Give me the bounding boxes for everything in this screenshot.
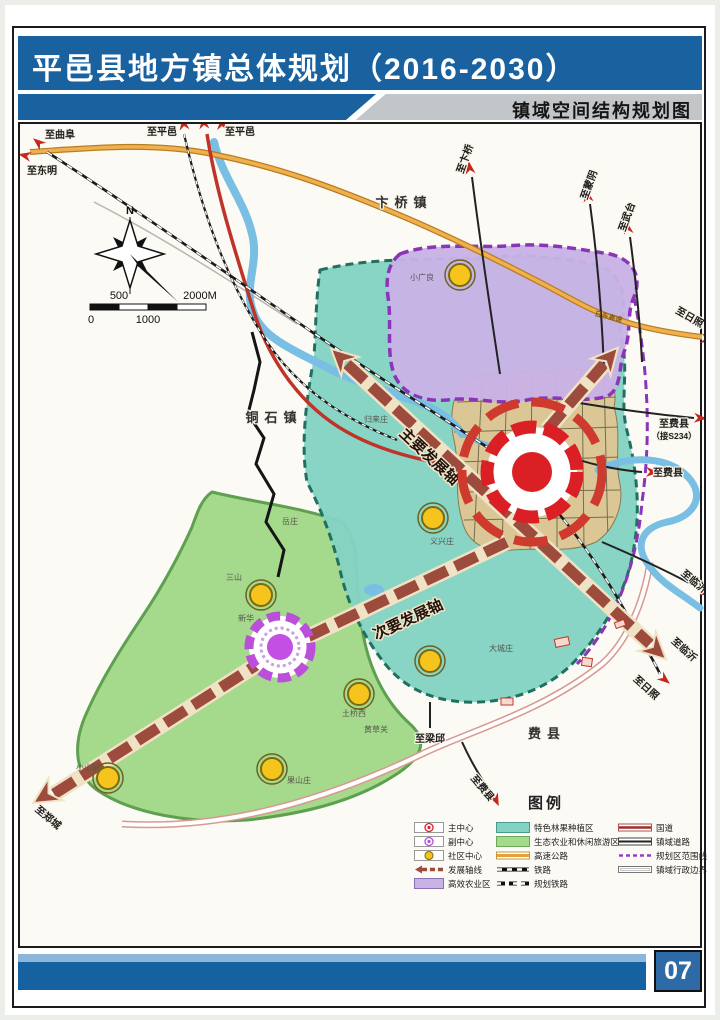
page-number: 07 <box>654 950 702 992</box>
scale-label: 2000M <box>183 290 217 302</box>
legend-item-community-center: 社区中心 <box>414 850 491 861</box>
legend-label: 铁路 <box>534 864 551 876</box>
road-label: 至蒙阴 <box>577 168 599 201</box>
legend-label: 副中心 <box>448 836 474 848</box>
village-label: 土桥西 <box>342 708 366 718</box>
sub-center-icon <box>414 836 444 847</box>
road-label: 至日照 <box>674 305 704 330</box>
village-label: 大城庄 <box>489 643 513 653</box>
road-label: 至平邑 <box>225 126 255 138</box>
subtitle-plate: 镇域空间结构规划图 <box>356 94 702 120</box>
page-title: 平邑县地方镇总体规划（2016-2030） <box>32 44 577 88</box>
national-road-icon <box>618 822 652 833</box>
planned-railway-icon <box>496 878 530 889</box>
legend-label: 规划区范围线 <box>656 850 707 862</box>
village-label: 归来庄 <box>364 414 388 424</box>
community-center-icon <box>414 850 444 861</box>
legend-item-forest-fruit: 特色林果种植区 <box>496 822 619 833</box>
railway-icon <box>496 864 530 875</box>
road-label: 至费县 <box>659 417 689 430</box>
road-label: 至武台 <box>615 200 637 233</box>
road-label: 至平邑 <box>147 126 177 138</box>
legend-label: 生态农业和休闲旅游区 <box>534 836 619 848</box>
map-subtitle: 镇域空间结构规划图 <box>512 97 692 123</box>
legend: 图例 主中心 副中心 社区中心 发展轴线 高效农业区 <box>388 792 704 916</box>
legend-column-2: 特色林果种植区 生态农业和休闲旅游区 高速公路 铁路 规划铁路 <box>496 822 619 892</box>
road-label: 至梁邱 <box>415 732 445 745</box>
village-label: 小山前 <box>76 762 100 772</box>
scale-label: 1000 <box>136 314 160 326</box>
legend-label: 高效农业区 <box>448 878 491 890</box>
town-label: 费县 <box>528 726 566 741</box>
compass-north-label: N <box>126 205 134 217</box>
eco-tourism-swatch <box>496 836 530 847</box>
legend-item-town-road: 镇域道路 <box>618 836 707 847</box>
road-label: （接S234） <box>651 431 696 441</box>
legend-column-1: 主中心 副中心 社区中心 发展轴线 高效农业区 <box>414 822 491 892</box>
admin-boundary-icon <box>618 864 652 875</box>
expressway-icon <box>496 850 530 861</box>
road-label: 至东明 <box>27 164 57 177</box>
legend-label: 社区中心 <box>448 850 482 862</box>
sub-center <box>249 616 311 678</box>
main-center-icon <box>414 822 444 833</box>
legend-item-eco-tourism: 生态农业和休闲旅游区 <box>496 836 619 847</box>
legend-column-3: 国道 镇域道路 规划区范围线 镇域行政边界 <box>618 822 707 878</box>
legend-label: 镇域道路 <box>656 836 690 848</box>
road-label: 至临沂 <box>669 635 700 665</box>
village-label: 义兴庄 <box>430 536 454 546</box>
legend-label: 国道 <box>656 822 673 834</box>
village-label: 果山庄 <box>287 775 311 785</box>
road-label: 至费县 <box>653 466 683 479</box>
legend-label: 主中心 <box>448 822 474 834</box>
legend-label: 特色林果种植区 <box>534 822 594 834</box>
village-label: 三山 <box>226 572 242 582</box>
legend-item-admin-boundary: 镇域行政边界 <box>618 864 707 875</box>
legend-label: 发展轴线 <box>448 864 482 876</box>
town-label: 铜石镇 <box>244 410 302 425</box>
legend-item-main-center: 主中心 <box>414 822 491 833</box>
town-road-icon <box>618 836 652 847</box>
legend-title: 图例 <box>388 792 704 813</box>
legend-label: 镇域行政边界 <box>656 864 707 876</box>
scanned-plan-page: 平邑县地方镇总体规划（2016-2030） 镇域空间结构规划图 <box>0 0 720 1020</box>
scale-label: 500 <box>110 290 128 302</box>
legend-item-planned-railway: 规划铁路 <box>496 878 619 889</box>
road-label: 至郑城 <box>33 803 64 832</box>
legend-item-planning-boundary: 规划区范围线 <box>618 850 707 861</box>
scale-bar: 500 2000M 0 1000 <box>88 290 217 326</box>
efficient-agriculture-swatch <box>414 878 444 889</box>
village-label: 新华 <box>238 613 254 623</box>
legend-item-development-axis: 发展轴线 <box>414 864 491 875</box>
village-label: 岳庄 <box>282 516 298 526</box>
legend-item-national-road: 国道 <box>618 822 707 833</box>
road-label: 至曲阜 <box>45 128 75 141</box>
footer-bar-light <box>18 954 646 962</box>
road-label: 至日照 <box>631 673 661 702</box>
legend-label: 高速公路 <box>534 850 568 862</box>
legend-item-expressway: 高速公路 <box>496 850 619 861</box>
planning-boundary-icon <box>618 850 652 861</box>
scale-label: 0 <box>88 314 94 326</box>
title-bar: 平邑县地方镇总体规划（2016-2030） <box>18 36 702 90</box>
village-label: 黄草关 <box>364 724 388 734</box>
development-axis-icon <box>414 864 444 875</box>
town-label: 卞桥镇 <box>375 195 432 210</box>
footer-bar-dark <box>18 962 646 990</box>
forest-fruit-swatch <box>496 822 530 833</box>
village-label: 小广良 <box>410 272 434 282</box>
legend-label: 规划铁路 <box>534 878 568 890</box>
compass-rose: N <box>96 205 178 302</box>
legend-item-railway: 铁路 <box>496 864 619 875</box>
legend-item-efficient-agriculture: 高效农业区 <box>414 878 491 889</box>
legend-item-sub-center: 副中心 <box>414 836 491 847</box>
